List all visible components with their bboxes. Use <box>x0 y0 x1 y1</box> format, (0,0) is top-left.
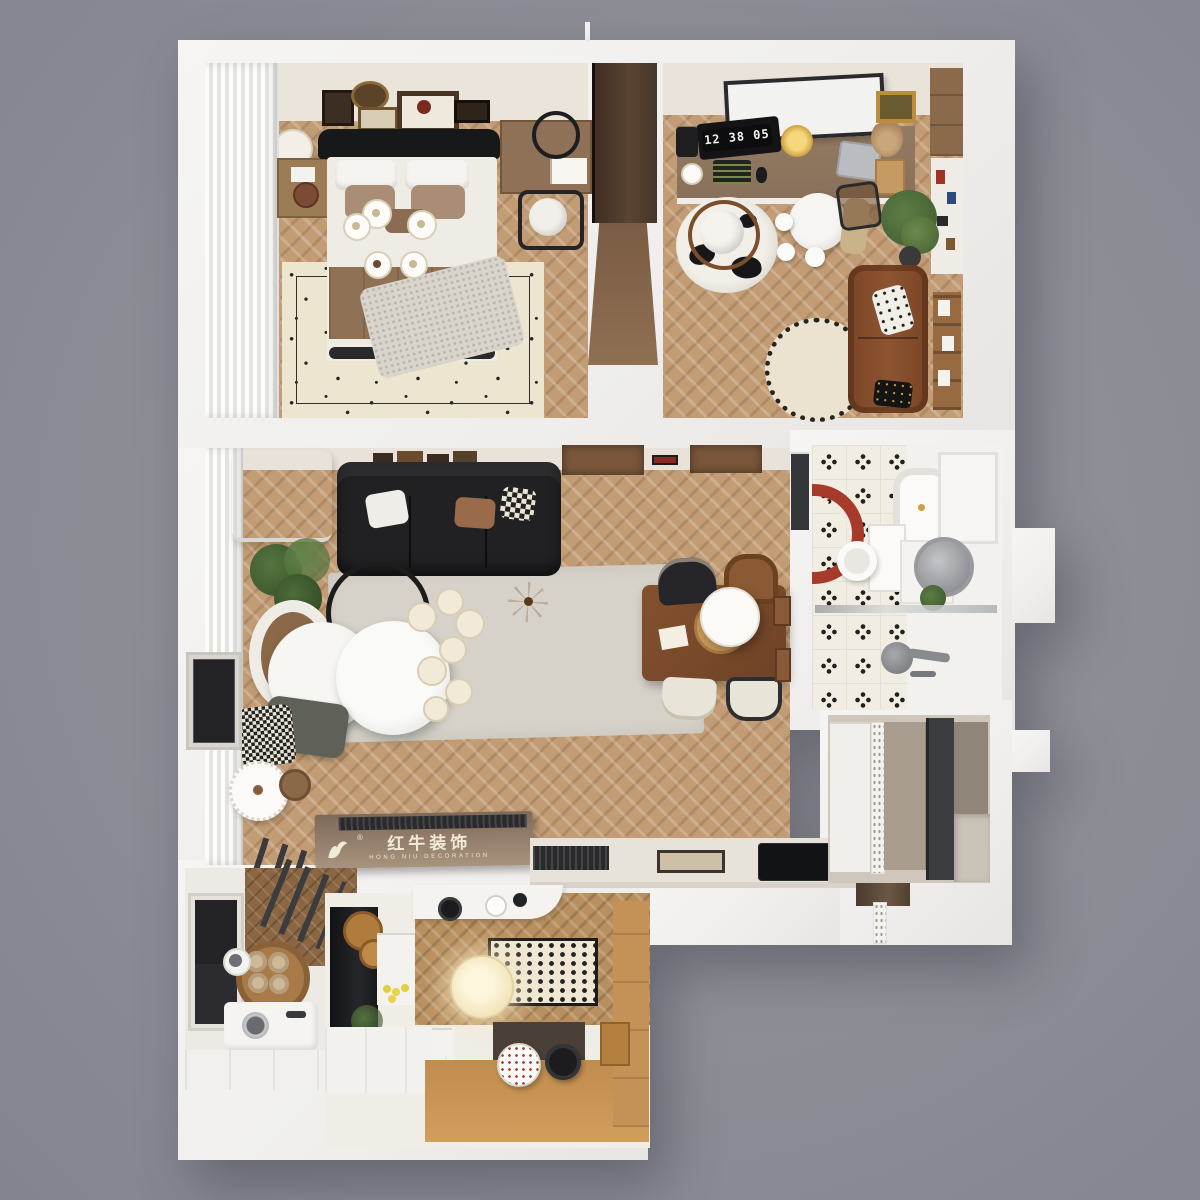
shoe-cabinet-white <box>830 722 870 872</box>
mouse <box>756 167 767 183</box>
vanity-chair <box>518 190 584 250</box>
shower-head <box>881 642 913 674</box>
pouf-patterned <box>237 703 297 768</box>
entry-wardrobe-charcoal <box>926 718 954 880</box>
counter-tray <box>657 850 725 873</box>
lemon <box>401 984 409 992</box>
ceiling-vent-red <box>652 455 678 465</box>
dining-chair-cream <box>726 677 782 721</box>
toilet-seat <box>844 548 870 574</box>
ring-light-mirror <box>532 111 580 159</box>
pumpkin-stem <box>524 597 533 606</box>
pillow-black <box>873 379 914 409</box>
desk-chair <box>688 200 760 270</box>
scene-background: 12 38 05 <box>0 0 1200 1200</box>
candle <box>373 260 381 268</box>
wall-mini-frame <box>773 596 791 626</box>
registered-mark: ® <box>357 833 363 842</box>
watermark-cn: 红牛装饰 <box>387 834 471 853</box>
rolled-towel <box>268 952 289 973</box>
pumpkin <box>508 582 548 622</box>
pillow-white <box>364 489 409 529</box>
tub-faucet-gold <box>918 504 925 511</box>
apartment-building: 12 38 05 <box>0 0 1200 1200</box>
potted-plant <box>877 188 941 272</box>
ceiling-beam-slot <box>562 445 644 475</box>
picture-frame <box>322 90 354 126</box>
wood-stool <box>279 769 311 801</box>
watermark-en: HONG NIU DECORATION <box>369 852 490 862</box>
petal-lamp <box>423 696 449 722</box>
wall-mirror-small <box>223 948 251 976</box>
ladder-shelf <box>933 292 961 410</box>
wall-mini-frame <box>775 648 791 682</box>
toilet-bowl <box>837 541 877 581</box>
kitchen-counter <box>530 838 862 888</box>
room-entry-hall <box>828 715 990 883</box>
leather-sofa <box>848 265 928 413</box>
watermark: ® 红牛装饰 HONG NIU DECORATION <box>325 829 526 866</box>
bull-logo-icon <box>325 837 351 861</box>
book <box>947 192 956 204</box>
desk-lamp <box>781 125 813 157</box>
candle <box>352 222 360 230</box>
book <box>936 170 945 184</box>
shower-control <box>910 671 936 677</box>
room-bathroom <box>812 445 1002 710</box>
room-kitchen-nook <box>325 893 650 1148</box>
bench-right <box>613 901 649 1127</box>
sofa-seam <box>409 496 411 568</box>
entry-panel-taupe <box>884 722 928 870</box>
ceiling-beam-slot <box>690 445 762 473</box>
pot-black <box>545 1044 581 1080</box>
dining-chair-cream <box>661 677 717 722</box>
candle <box>417 220 425 228</box>
wall-protrusion-lower <box>1012 730 1050 772</box>
decor-tray <box>364 251 392 279</box>
picture-art <box>417 100 431 114</box>
book <box>291 167 315 182</box>
bowl-white <box>485 895 507 917</box>
coffee-cup <box>681 163 703 185</box>
book <box>946 238 955 250</box>
window-glass <box>193 659 235 743</box>
gas-burner <box>438 897 462 921</box>
gas-burner <box>513 893 527 907</box>
tray <box>293 182 319 208</box>
photo-card <box>938 300 950 316</box>
counter-grill <box>533 846 609 870</box>
wall-frame-gold <box>876 91 916 123</box>
pillow-brown <box>454 497 496 530</box>
room-living-dining <box>205 448 790 865</box>
camera <box>676 127 698 157</box>
cantilever-chair <box>835 180 883 231</box>
chair-fur-cushion <box>700 210 744 254</box>
picture-frame <box>358 107 398 131</box>
wardrobe-lower <box>588 223 658 365</box>
pillow-checker <box>499 486 537 522</box>
petal-lamp <box>417 656 447 686</box>
decor-tray <box>343 213 371 241</box>
room-study-office: 12 38 05 <box>663 63 963 418</box>
chair-cushion <box>529 198 567 236</box>
pillow-floral <box>870 283 915 337</box>
washer-door <box>242 1012 269 1039</box>
vent-strip-hanging <box>873 902 887 944</box>
bedroom-curtains <box>205 63 279 418</box>
paper-lantern <box>450 955 514 1019</box>
vent-strip <box>871 722 885 874</box>
stool <box>777 243 795 261</box>
pot-white-dotted <box>497 1043 541 1087</box>
rolled-towel <box>269 974 289 994</box>
media-console: ® 红牛装饰 HONG NIU DECORATION <box>315 811 534 869</box>
washer-controls <box>286 1011 306 1018</box>
picture-frame <box>454 100 490 123</box>
sofa-seam <box>858 337 918 339</box>
room-master-bedroom <box>205 63 588 418</box>
living-window <box>186 652 242 750</box>
wall-protrusion-upper <box>1012 528 1055 623</box>
spice-boxes <box>432 1028 452 1056</box>
stool <box>775 213 793 231</box>
open-shelf <box>377 933 415 1005</box>
wardrobe-tall <box>592 63 657 223</box>
entry-corner <box>954 814 990 882</box>
petal-lamp <box>439 636 467 664</box>
candle <box>409 260 417 268</box>
keyboard <box>713 160 751 184</box>
petal-lamp <box>407 602 437 632</box>
rolled-towel <box>248 973 268 993</box>
dried-plant <box>871 119 903 157</box>
pendant-lamp-dining <box>700 587 760 647</box>
petal-lamp <box>445 678 473 706</box>
decor-tray <box>400 251 428 279</box>
shower-arm <box>908 648 951 663</box>
candle <box>372 209 380 217</box>
photo-card <box>942 336 954 351</box>
decor-tray <box>407 210 437 240</box>
stool <box>805 247 825 267</box>
petal-lamp <box>455 609 485 639</box>
lemon <box>383 985 391 993</box>
wood-box <box>600 1022 630 1066</box>
air-conditioner <box>232 450 332 542</box>
bath-upper-cabinet <box>938 452 998 544</box>
entry-panel-light <box>954 722 988 814</box>
washing-machine <box>224 1002 318 1050</box>
lemon <box>388 995 396 1003</box>
black-sofa <box>337 462 561 576</box>
stool-detail <box>253 785 263 795</box>
bed-headboard <box>318 129 500 159</box>
bathroom-glass-door <box>791 452 809 530</box>
notepad <box>658 625 688 650</box>
open-book <box>550 158 587 184</box>
mirror-glass <box>229 954 242 967</box>
upper-cabinet <box>930 68 963 156</box>
console-top-tray <box>339 814 527 830</box>
wall-top-tick <box>585 22 590 42</box>
shower-glass-partition <box>815 605 997 613</box>
photo-card <box>938 370 950 386</box>
